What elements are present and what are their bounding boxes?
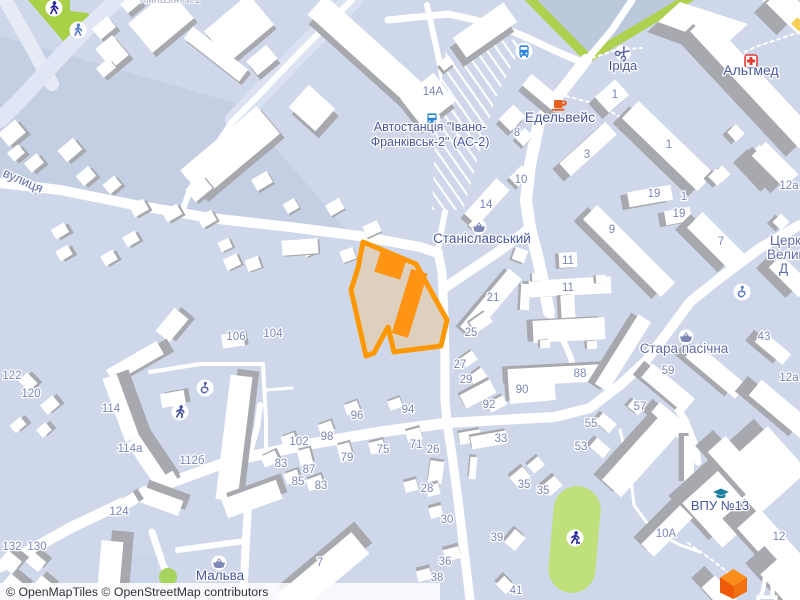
- svg-text:90: 90: [516, 384, 529, 396]
- svg-text:1: 1: [666, 139, 672, 151]
- svg-text:26: 26: [427, 444, 440, 456]
- svg-text:88: 88: [574, 368, 587, 380]
- svg-text:36: 36: [439, 556, 452, 568]
- svg-text:35: 35: [518, 479, 531, 491]
- svg-text:Мальва: Мальва: [196, 568, 245, 583]
- svg-text:38: 38: [431, 572, 444, 584]
- svg-text:Едельвейс: Едельвейс: [525, 109, 595, 125]
- svg-text:122: 122: [2, 370, 21, 382]
- svg-text:3: 3: [584, 149, 590, 161]
- svg-text:12a: 12a: [779, 372, 799, 384]
- svg-text:Станіславський: Станіславський: [433, 231, 531, 246]
- svg-text:10A: 10A: [656, 528, 677, 540]
- svg-text:104: 104: [263, 328, 283, 340]
- svg-text:132: 132: [2, 541, 21, 553]
- svg-text:12a: 12a: [779, 180, 799, 192]
- svg-text:27: 27: [454, 359, 467, 371]
- svg-text:11: 11: [562, 255, 574, 267]
- svg-text:98: 98: [321, 431, 334, 443]
- svg-text:© OpenMapTiles © OpenStreetMap: © OpenMapTiles © OpenStreetMap contribut…: [6, 585, 268, 599]
- svg-text:1: 1: [612, 89, 618, 101]
- svg-text:9: 9: [609, 224, 615, 236]
- svg-text:96: 96: [351, 410, 364, 422]
- svg-text:Іріда: Іріда: [609, 58, 638, 73]
- svg-text:112б: 112б: [180, 455, 205, 467]
- svg-text:Велико: Велико: [767, 247, 800, 262]
- svg-text:ВПУ №13: ВПУ №13: [691, 498, 749, 513]
- svg-text:8: 8: [514, 127, 520, 139]
- svg-text:71: 71: [410, 439, 423, 451]
- svg-text:19: 19: [673, 208, 686, 220]
- svg-text:106: 106: [226, 331, 245, 343]
- svg-text:41: 41: [510, 585, 523, 597]
- svg-text:59: 59: [662, 365, 675, 377]
- svg-text:120: 120: [21, 388, 40, 400]
- svg-text:57: 57: [634, 401, 647, 413]
- svg-text:25: 25: [465, 327, 478, 339]
- svg-text:35: 35: [537, 485, 550, 497]
- svg-text:19: 19: [648, 188, 661, 200]
- svg-text:53: 53: [575, 441, 588, 453]
- svg-text:55: 55: [585, 418, 598, 430]
- svg-text:14A: 14A: [423, 86, 444, 98]
- svg-text:114a: 114a: [118, 443, 143, 455]
- svg-text:11: 11: [562, 282, 574, 294]
- svg-text:Церкв: Церкв: [770, 233, 800, 248]
- svg-text:Д: Д: [779, 261, 788, 276]
- svg-text:1: 1: [681, 191, 687, 203]
- svg-text:39: 39: [491, 532, 504, 544]
- svg-text:ДН: ДН: [756, 571, 800, 600]
- svg-text:85: 85: [292, 476, 305, 488]
- svg-text:10: 10: [515, 174, 528, 186]
- svg-text:94: 94: [402, 404, 415, 416]
- svg-text:7: 7: [718, 236, 724, 248]
- svg-text:Франківськ-2" (АС-2): Франківськ-2" (АС-2): [371, 135, 490, 149]
- svg-text:87: 87: [303, 464, 316, 476]
- svg-text:33: 33: [495, 433, 508, 445]
- svg-text:43: 43: [758, 331, 771, 343]
- svg-text:114: 114: [102, 403, 121, 415]
- svg-text:гімназія №1: гімназія №1: [140, 0, 201, 6]
- svg-text:14: 14: [480, 199, 493, 211]
- svg-text:124: 124: [109, 506, 129, 518]
- svg-text:79: 79: [341, 452, 354, 464]
- svg-text:83: 83: [275, 458, 288, 470]
- svg-text:130: 130: [27, 541, 46, 553]
- svg-text:83: 83: [315, 480, 328, 492]
- svg-text:29: 29: [460, 374, 473, 386]
- svg-text:75: 75: [377, 444, 390, 456]
- svg-text:21: 21: [487, 292, 500, 304]
- svg-text:30: 30: [441, 514, 454, 526]
- svg-text:Стара пасічна: Стара пасічна: [640, 341, 729, 356]
- svg-text:28: 28: [421, 483, 434, 495]
- svg-text:102: 102: [289, 436, 308, 448]
- svg-text:Автостанція "Івано-: Автостанція "Івано-: [374, 120, 487, 134]
- svg-text:7: 7: [317, 557, 323, 569]
- svg-text:Альтмед: Альтмед: [723, 62, 778, 78]
- svg-text:92: 92: [483, 399, 496, 411]
- svg-text:12: 12: [773, 531, 786, 543]
